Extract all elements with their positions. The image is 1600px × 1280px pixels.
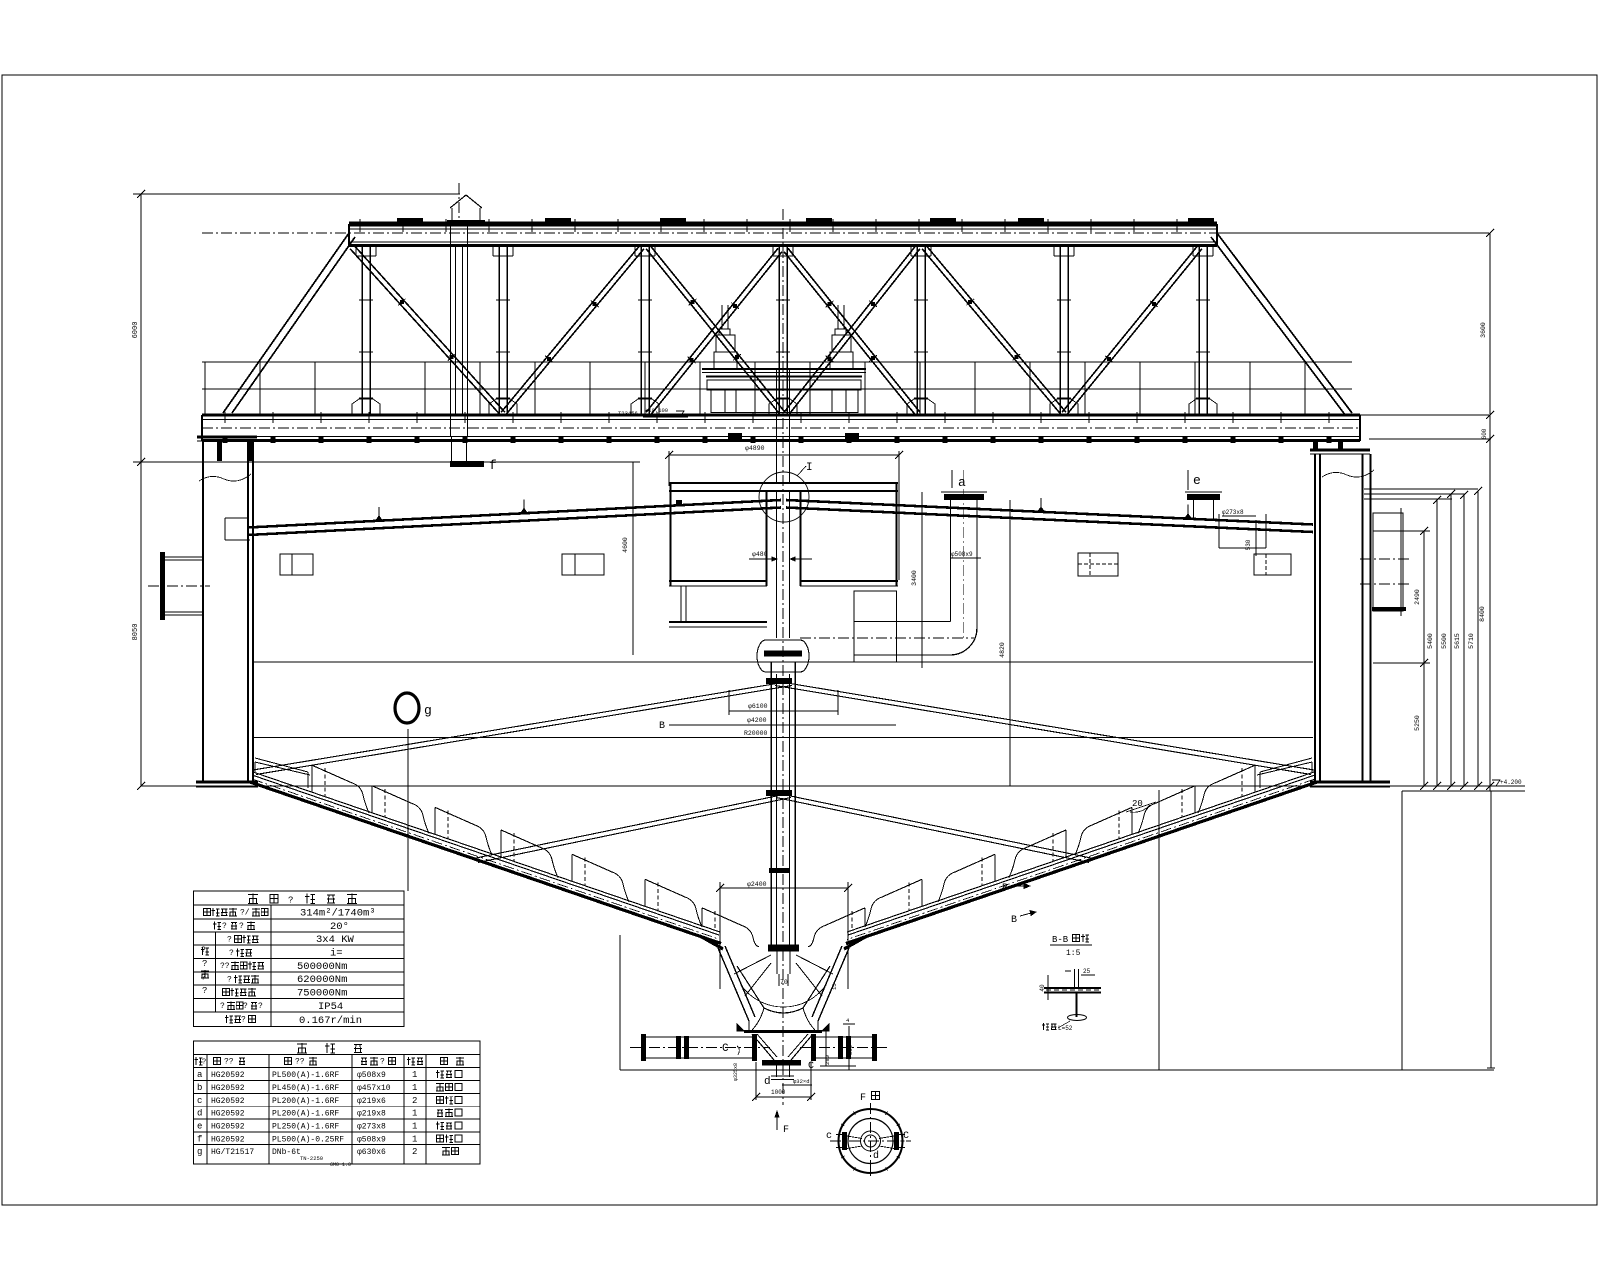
svg-text:600: 600 — [1481, 428, 1488, 439]
svg-text:φ4200: φ4200 — [747, 717, 767, 724]
svg-text:d: d — [764, 1076, 771, 1088]
svg-text:PL500(A)-1.6RF: PL500(A)-1.6RF — [272, 1071, 339, 1080]
svg-text:I: I — [806, 462, 813, 474]
svg-text:IP54: IP54 — [318, 1001, 343, 1013]
svg-text:HG20592: HG20592 — [211, 1110, 245, 1119]
svg-text:c: c — [826, 1131, 832, 1142]
svg-text:5710: 5710 — [1468, 633, 1475, 649]
svg-text:+4.200: +4.200 — [1500, 779, 1522, 786]
svg-text:6000: 6000 — [132, 322, 140, 339]
svg-text:φ4890: φ4890 — [745, 445, 765, 452]
svg-text:PL200(A)-1.6RF: PL200(A)-1.6RF — [272, 1097, 339, 1106]
svg-text:HG20592: HG20592 — [211, 1136, 245, 1145]
svg-text:e: e — [197, 1122, 202, 1132]
svg-text:PL250(A)-1.6RF: PL250(A)-1.6RF — [272, 1123, 339, 1132]
svg-text:T23456: T23456 — [618, 410, 638, 417]
svg-text:φ480: φ480 — [752, 551, 768, 558]
svg-text:1: 1 — [412, 1122, 417, 1132]
svg-text:?: ? — [380, 1058, 385, 1067]
svg-text:d: d — [873, 1150, 879, 1162]
svg-text:φ219x6: φ219x6 — [357, 1097, 386, 1106]
svg-text:φ219x8: φ219x8 — [357, 1110, 386, 1119]
svg-text:φ457x10: φ457x10 — [357, 1084, 391, 1093]
svg-text:25: 25 — [1083, 968, 1091, 975]
svg-text:4820: 4820 — [999, 642, 1006, 658]
svg-text:?: ? — [241, 1016, 246, 1025]
svg-text:φ325x8: φ325x8 — [733, 1063, 739, 1081]
svg-text:i=: i= — [330, 948, 343, 960]
svg-text:6M0 1.0: 6M0 1.0 — [330, 1162, 351, 1168]
svg-text:??: ?? — [295, 1058, 305, 1067]
svg-text:620000Nm: 620000Nm — [297, 974, 347, 986]
svg-text:g: g — [197, 1147, 202, 1157]
svg-text:40: 40 — [1039, 984, 1046, 992]
svg-text:a: a — [197, 1070, 203, 1080]
svg-text:φ508x9: φ508x9 — [357, 1136, 386, 1145]
svg-text:HG20592: HG20592 — [211, 1071, 245, 1080]
svg-text:φ2400: φ2400 — [747, 881, 767, 888]
svg-text:0.167r/min: 0.167r/min — [299, 1015, 362, 1027]
svg-text:d: d — [197, 1109, 202, 1119]
svg-text:8400: 8400 — [1479, 606, 1486, 622]
svg-text:?: ? — [202, 1059, 206, 1067]
svg-text:a: a — [958, 475, 966, 490]
svg-text:f: f — [197, 1135, 202, 1145]
svg-text:4600: 4600 — [622, 537, 629, 553]
svg-text:15: 15 — [831, 983, 838, 990]
svg-text:b: b — [197, 1083, 202, 1093]
svg-text:?: ? — [202, 959, 207, 969]
svg-text:e: e — [1193, 473, 1201, 488]
svg-text:PL450(A)-1.6RF: PL450(A)-1.6RF — [272, 1084, 339, 1093]
svg-text:1000: 1000 — [771, 1089, 786, 1096]
svg-text:1: 1 — [412, 1109, 417, 1119]
svg-text:DNb-6t: DNb-6t — [272, 1148, 301, 1157]
svg-text:?: ? — [258, 1002, 263, 1011]
svg-text:2: 2 — [412, 1096, 417, 1106]
svg-text:B: B — [1002, 883, 1008, 894]
svg-text:φ630x6: φ630x6 — [357, 1148, 386, 1157]
svg-text:5615: 5615 — [1454, 633, 1461, 649]
svg-text:φ6100: φ6100 — [748, 703, 768, 710]
svg-text:B-B: B-B — [1052, 935, 1069, 945]
svg-text:C: C — [722, 1043, 729, 1055]
svg-text:3600: 3600 — [1480, 322, 1487, 338]
svg-text:5250: 5250 — [1414, 715, 1421, 731]
svg-text:1: 1 — [412, 1135, 417, 1145]
svg-text:c: c — [197, 1096, 202, 1106]
svg-text:?: ? — [227, 936, 232, 945]
svg-text:φ32×d: φ32×d — [793, 1078, 810, 1085]
svg-text:?: ? — [201, 946, 206, 955]
svg-text:5500: 5500 — [1441, 633, 1448, 649]
svg-text:?: ? — [229, 949, 234, 958]
svg-text:C: C — [903, 1131, 909, 1142]
svg-text:TN-2250: TN-2250 — [300, 1155, 323, 1162]
svg-text:70: 70 — [780, 979, 788, 986]
svg-text:F: F — [783, 1125, 789, 1136]
svg-text:530: 530 — [1245, 539, 1252, 550]
svg-text:HG20592: HG20592 — [211, 1123, 245, 1132]
svg-text:3400: 3400 — [911, 570, 918, 586]
svg-text:?: ? — [222, 922, 227, 931]
svg-text:HG20592: HG20592 — [211, 1084, 245, 1093]
svg-text:??: ?? — [220, 962, 230, 971]
svg-text:20°: 20° — [330, 921, 349, 933]
svg-text:g: g — [424, 703, 432, 718]
svg-text:?: ? — [227, 976, 232, 985]
svg-text:?: ? — [202, 986, 207, 996]
svg-text:280: 280 — [824, 1055, 831, 1065]
svg-text:B: B — [659, 721, 665, 732]
svg-text:φ273x8: φ273x8 — [1222, 509, 1244, 516]
svg-text:φ508x9: φ508x9 — [951, 551, 973, 558]
svg-text:20: 20 — [1132, 799, 1143, 809]
svg-text:?: ? — [243, 1002, 248, 1011]
svg-text:PL500(A)-0.25RF: PL500(A)-0.25RF — [272, 1136, 344, 1145]
svg-text:1:5: 1:5 — [1066, 949, 1081, 958]
svg-text:1: 1 — [412, 1083, 417, 1093]
svg-text:R20000: R20000 — [744, 730, 768, 737]
svg-text:φ273x8: φ273x8 — [357, 1123, 386, 1132]
svg-text:+10.100: +10.100 — [645, 407, 668, 414]
svg-text:5400: 5400 — [1427, 633, 1434, 649]
svg-text:314m²/1740m³: 314m²/1740m³ — [300, 908, 376, 920]
svg-text:L=52: L=52 — [1058, 1025, 1073, 1032]
svg-text:1: 1 — [412, 1070, 417, 1080]
svg-text:f: f — [489, 458, 497, 473]
svg-text:?/: ?/ — [240, 909, 250, 918]
svg-text:φ508x9: φ508x9 — [357, 1071, 386, 1080]
svg-text:3x4 KW: 3x4 KW — [316, 934, 355, 946]
svg-text:8050: 8050 — [132, 624, 140, 641]
svg-text:580: 580 — [847, 1045, 854, 1055]
svg-text:B: B — [1011, 915, 1017, 926]
svg-text:HG20592: HG20592 — [211, 1097, 245, 1106]
svg-text:?: ? — [239, 922, 244, 931]
svg-text:?: ? — [220, 1002, 225, 1011]
svg-text:2490: 2490 — [1414, 589, 1421, 605]
svg-text:2: 2 — [412, 1147, 417, 1157]
svg-text:PL200(A)-1.6RF: PL200(A)-1.6RF — [272, 1110, 339, 1119]
svg-text:750000Nm: 750000Nm — [297, 988, 347, 1000]
svg-text:??: ?? — [224, 1058, 234, 1067]
svg-text:F: F — [860, 1093, 866, 1104]
svg-text:500000Nm: 500000Nm — [297, 961, 347, 973]
svg-text:HG/T21517: HG/T21517 — [211, 1148, 254, 1157]
svg-text:?: ? — [288, 896, 293, 906]
